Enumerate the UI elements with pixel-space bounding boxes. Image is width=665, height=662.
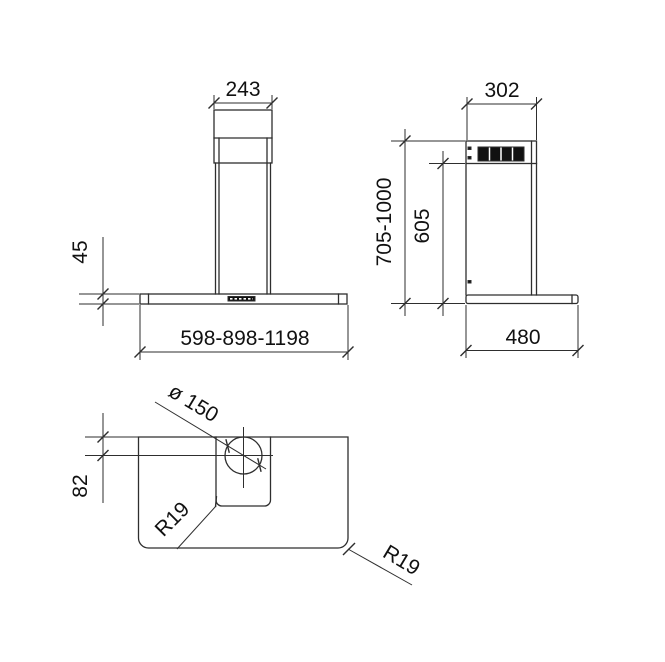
tick-mark: [216, 496, 217, 507]
dimension-label: 243: [225, 78, 260, 101]
drawing-canvas: 243 45 598-898-1198: [0, 0, 665, 662]
fixing-dot: [468, 157, 471, 160]
dimension-outer-corner-radius: R19: [343, 541, 424, 585]
dimension-label: 302: [484, 79, 519, 102]
hood-body-side: [466, 295, 578, 304]
dimension-duct-offset: 82: [69, 413, 109, 503]
dimension-label: 480: [505, 326, 540, 349]
dimension-label: R19: [379, 541, 424, 581]
dimension-width-range: 598-898-1198: [135, 305, 354, 360]
fixing-dot: [468, 147, 471, 150]
dimension-label: ø 150: [164, 380, 222, 427]
chimney-upper-section: [214, 110, 272, 163]
dimension-label: 605: [411, 208, 434, 243]
plan-view: [85, 427, 348, 548]
dimension-inner-corner-radius: R19: [151, 496, 217, 549]
dimension-duct-diameter: ø 150: [155, 380, 266, 472]
dimension-label: 598-898-1198: [180, 327, 309, 350]
fixing-dot: [468, 281, 471, 284]
dimension-body-depth: 480: [461, 305, 584, 358]
dimension-label: 705-1000: [373, 178, 396, 267]
dimension-chimney-width: 243: [209, 78, 278, 109]
tick-mark: [258, 458, 261, 472]
dimension-depth-top: 302: [462, 79, 543, 140]
side-view: [466, 141, 578, 304]
dimension-drawing-svg: 243 45 598-898-1198: [0, 0, 665, 662]
dimension-upper-height: 605: [411, 151, 465, 316]
dimension-label: 82: [69, 474, 92, 497]
front-view: [140, 110, 347, 304]
dimension-label: 45: [69, 240, 92, 263]
dimension-body-height: 45: [69, 237, 139, 326]
dimension-label: R19: [151, 498, 195, 542]
